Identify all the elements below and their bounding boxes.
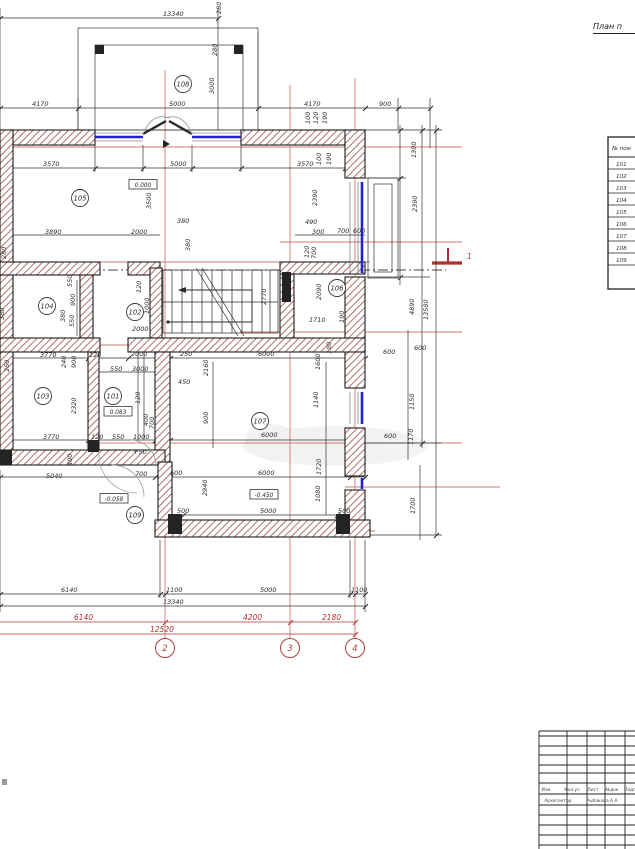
dim-label: 500: [338, 507, 350, 515]
title-block-cell: Рыбакова А.А: [587, 797, 618, 804]
dim-label: 5000: [170, 160, 187, 168]
dim-label: 700: [337, 227, 349, 235]
dim-label: 600: [383, 348, 395, 356]
dim-label: 900: [70, 356, 78, 368]
title-block-cell: Изм: [542, 787, 551, 793]
dim-label: 6000: [261, 431, 278, 439]
dim-label: 3570: [43, 160, 60, 168]
table-row-value: 103: [616, 186, 627, 192]
dim-label: 1080: [314, 485, 322, 502]
axis-lines-layer: [0, 70, 500, 638]
dim-label: 1000: [133, 433, 150, 441]
dim-label: 5040: [46, 472, 63, 480]
dim-label: 2160: [202, 359, 210, 376]
dim-label: 550: [66, 275, 74, 287]
dim-label: 600: [170, 469, 182, 477]
dim-label: 550: [112, 433, 124, 441]
dim-label: 3000: [208, 77, 216, 94]
dim-label: 1150: [408, 393, 416, 410]
dim-label: 600: [384, 432, 396, 440]
dim-label: 100: [304, 112, 312, 124]
dimension-ticks: [0, 16, 439, 637]
dim-label: 280: [215, 2, 223, 14]
dim-label: 1600: [314, 353, 322, 370]
dim-label: 3770: [43, 433, 60, 441]
dim-label: 190: [325, 342, 333, 354]
dim-label: 2000: [131, 350, 148, 358]
bay-window: [368, 178, 398, 278]
room-number: 106: [331, 284, 345, 292]
dim-label: 600: [353, 227, 365, 235]
dim-label: 300: [312, 228, 324, 236]
dim-label: 120: [134, 392, 142, 404]
floor-plan-canvas: 1334028028030004170500041709001001201903…: [0, 0, 635, 849]
dim-label: 1140: [312, 391, 320, 408]
table-row-value: 109: [616, 258, 627, 264]
dim-label: 550: [110, 365, 122, 373]
dim-label: 1700: [409, 497, 417, 514]
table-header: № пом: [611, 146, 632, 152]
dim-label: 280: [211, 44, 219, 56]
axis-number: 3: [287, 644, 292, 654]
dim-label: 190: [325, 153, 333, 165]
dim-label: 120: [89, 351, 101, 359]
table-row-value: 104: [616, 198, 627, 204]
dim-label: 13340: [163, 10, 184, 18]
room-number: 103: [37, 392, 50, 400]
title-block-cell: №док: [606, 787, 619, 793]
dim-label: 3890: [45, 228, 62, 236]
room-number: 107: [254, 417, 268, 425]
dim-label: 5000: [169, 100, 186, 108]
dim-label: 900: [202, 412, 210, 424]
level-value: -0.450: [255, 493, 274, 499]
title-block-cell: Подп: [624, 787, 635, 793]
table-row-value: 106: [616, 222, 627, 228]
dim-label-red: 2180: [322, 613, 341, 622]
dim-label: 2090: [315, 283, 323, 300]
dim-label: 120: [312, 112, 320, 124]
dim-label: 13340: [163, 598, 184, 606]
room-number: 108: [177, 80, 191, 88]
dim-label: 380: [184, 239, 192, 251]
section-number: 1: [467, 252, 472, 261]
level-value: 0.000: [135, 183, 152, 189]
dim-label: 2770: [260, 288, 268, 305]
table-row-value: 101: [616, 162, 627, 168]
axis-number: 2: [162, 644, 167, 654]
dim-label: +50: [133, 448, 147, 456]
dim-label: 100: [315, 153, 323, 165]
dim-label: 400: [66, 454, 74, 466]
dim-label: 1170: [407, 428, 415, 445]
corner-mark: [2, 779, 7, 785]
room-number: 104: [41, 302, 54, 310]
room-number: 101: [107, 392, 120, 400]
dim-label: 900: [379, 100, 391, 108]
dim-label: 2320: [70, 397, 78, 414]
table-row-value: 108: [616, 246, 627, 252]
dim-label: 380: [0, 308, 6, 320]
dim-label: 2000: [131, 228, 148, 236]
dim-label-red: 4200: [243, 613, 262, 622]
dim-label: 190: [338, 311, 346, 323]
dim-label: 700: [135, 470, 147, 478]
dim-label: 4170: [32, 100, 49, 108]
dim-label: 900: [69, 294, 77, 306]
dim-label: 3770: [40, 351, 57, 359]
dim-label: 2000: [132, 325, 149, 333]
title-block-cell: Лист: [587, 787, 599, 793]
dim-label: 13580: [422, 299, 430, 320]
dim-label: 120: [91, 433, 103, 441]
dim-label: 1720: [315, 458, 323, 475]
dim-label: 3500: [145, 192, 153, 209]
table-row-value: 102: [616, 174, 627, 180]
room-number: 105: [74, 194, 87, 202]
dim-label: 1000: [143, 297, 151, 314]
dim-label-red: 6140: [74, 613, 93, 622]
dim-label: 2390: [311, 189, 319, 206]
dim-label: 490: [305, 218, 317, 226]
level-value: 0.083: [110, 410, 127, 416]
title-block-cell: Кол.уч: [564, 787, 580, 793]
dim-label: 1100: [351, 586, 368, 594]
dim-label: 700: [310, 247, 318, 259]
dim-label: 1300: [410, 141, 418, 158]
dim-label: 2390: [411, 195, 419, 212]
dim-label: 600: [414, 344, 426, 352]
dim-label: 6000: [258, 469, 275, 477]
room-number: 109: [129, 511, 142, 519]
dim-label: 4170: [304, 100, 321, 108]
dim-label: 190: [321, 112, 329, 124]
table-row-value: 107: [616, 234, 627, 240]
dim-label: 280: [0, 247, 8, 259]
dim-label: 450: [178, 378, 190, 386]
level-value: -0.058: [105, 497, 124, 503]
dim-label: 500: [177, 507, 189, 515]
dim-label: 3000: [132, 365, 149, 373]
dim-label: 380: [177, 217, 189, 225]
dim-label: 6140: [61, 586, 78, 594]
dim-label: 5000: [260, 507, 277, 515]
dim-label: 2940: [201, 479, 209, 496]
dim-label: 1100: [166, 586, 183, 594]
dim-label: 6000: [258, 350, 275, 358]
dim-label: 120: [135, 281, 143, 293]
dim-label: 4890: [408, 298, 416, 315]
dim-label: 3570: [297, 160, 314, 168]
dim-label-red: 12520: [150, 625, 174, 634]
dim-label: 550: [68, 315, 76, 327]
dim-label: 250: [180, 350, 192, 358]
dim-label: 1710: [309, 316, 326, 324]
table-row-value: 105: [616, 210, 627, 216]
dim-label: 240: [60, 356, 68, 368]
dim-label: 5000: [260, 586, 277, 594]
drawing-title: План п: [593, 22, 635, 34]
dim-label: 260: [3, 360, 11, 372]
axis-number: 4: [352, 644, 357, 654]
dim-label: 380: [59, 310, 67, 322]
dim-label: 700: [148, 417, 156, 429]
room-number: 102: [129, 308, 142, 316]
porch-outline: [78, 28, 258, 130]
title-block-cell: Архитектор: [544, 798, 571, 804]
floor-plan-svg: 1334028028030004170500041709001001201903…: [0, 0, 635, 849]
